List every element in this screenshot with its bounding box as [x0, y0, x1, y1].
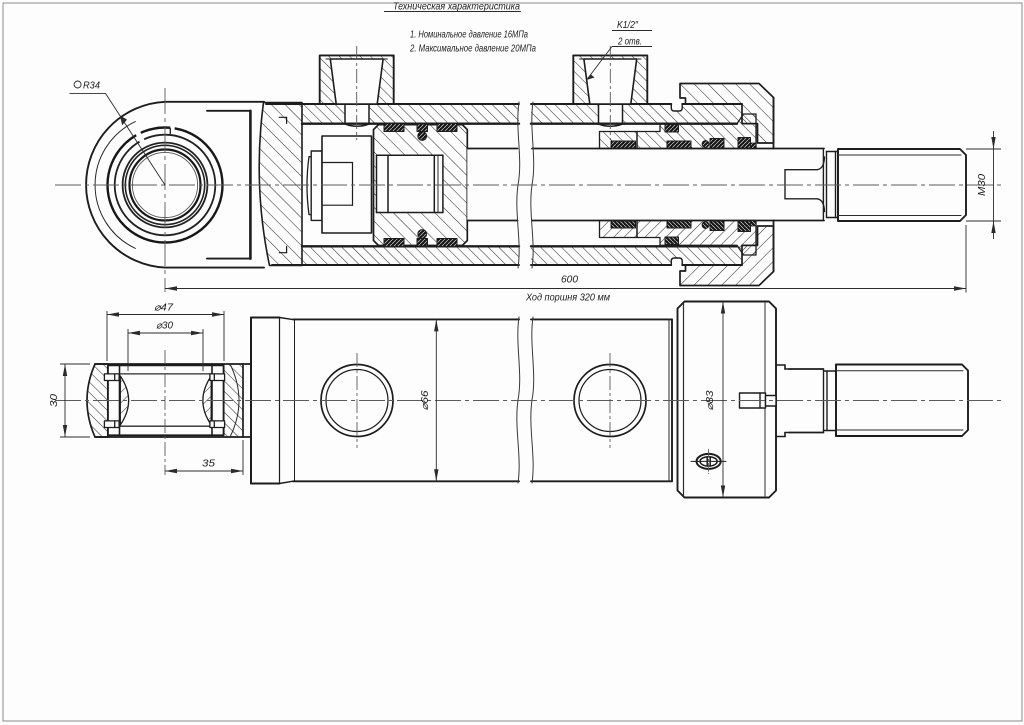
svg-text:⌀30: ⌀30	[156, 321, 173, 332]
svg-text:1. Номинальное давление 16МПа: 1. Номинальное давление 16МПа	[410, 30, 528, 41]
svg-text:⌀83: ⌀83	[705, 390, 716, 410]
svg-text:⌀66: ⌀66	[420, 390, 431, 410]
svg-text:M30: M30	[977, 174, 988, 196]
svg-text:⌀47: ⌀47	[154, 303, 173, 314]
svg-text:K1/2″: K1/2″	[617, 20, 638, 31]
svg-text:2 отв.: 2 отв.	[617, 37, 642, 48]
svg-text:600: 600	[561, 275, 578, 286]
svg-text:Ход поршня 320 мм: Ход поршня 320 мм	[525, 293, 610, 304]
svg-text:R34: R34	[83, 81, 100, 92]
svg-text:Техническая характеристика: Техническая характеристика	[393, 2, 520, 13]
svg-text:35: 35	[202, 459, 216, 470]
svg-text:2. Максимальное давление 20МП: 2. Максимальное давление 20МПа	[409, 44, 536, 55]
svg-text:30: 30	[49, 393, 60, 407]
